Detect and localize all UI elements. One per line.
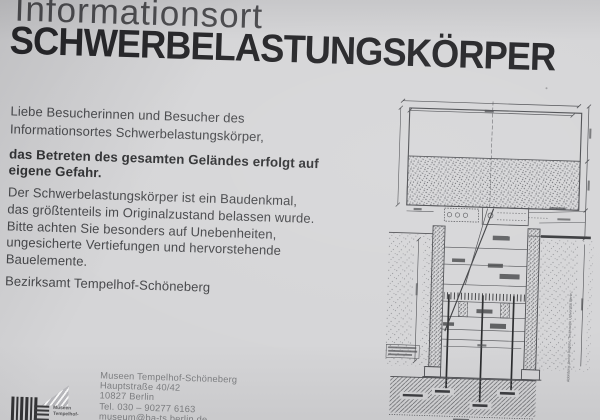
sign-surface: Informationsort SCHWERBELASTUNGSKÖRPER L… [0, 0, 600, 420]
sign-photo: Informationsort SCHWERBELASTUNGSKÖRPER L… [0, 0, 600, 420]
notice-paragraph: Der Schwerbelastungskörper ist ein Baude… [6, 184, 316, 278]
warning-paragraph: das Betreten des gesamten Geländes erfol… [8, 146, 319, 187]
museum-logo-triangle-icon [41, 385, 69, 407]
signature-line: Bezirksamt Tempelhof-Schöneberg [5, 272, 211, 296]
cross-section-diagram: Abbildung: Archiv Degebo, Technische Uni… [383, 92, 598, 420]
logo-text-line: Tempelhof- [53, 411, 79, 417]
intro-paragraph: Liebe Besucherinnen und Besucher des Inf… [10, 102, 265, 146]
museum-logo-text: Museen Tempelhof- [53, 406, 79, 418]
contact-block: Museen Tempelhof-Schöneberg Hauptstraße … [98, 370, 253, 420]
dust-speck [545, 87, 547, 89]
museum-logo-lines-icon [34, 405, 50, 420]
sign-title: SCHWERBELASTUNGSKÖRPER [9, 21, 556, 79]
